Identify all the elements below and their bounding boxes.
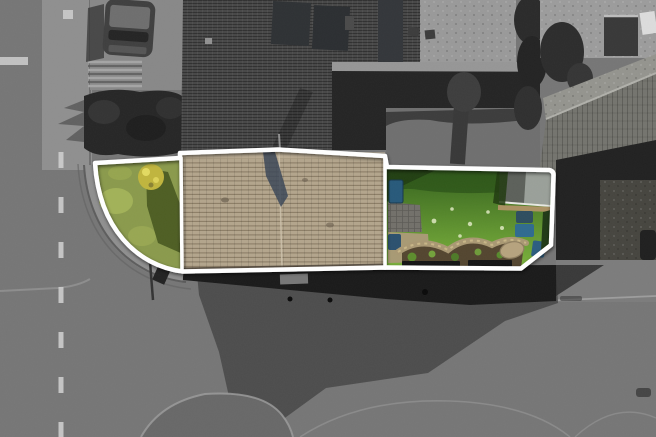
film-grain [0, 0, 656, 437]
aerial-photo [0, 0, 656, 437]
